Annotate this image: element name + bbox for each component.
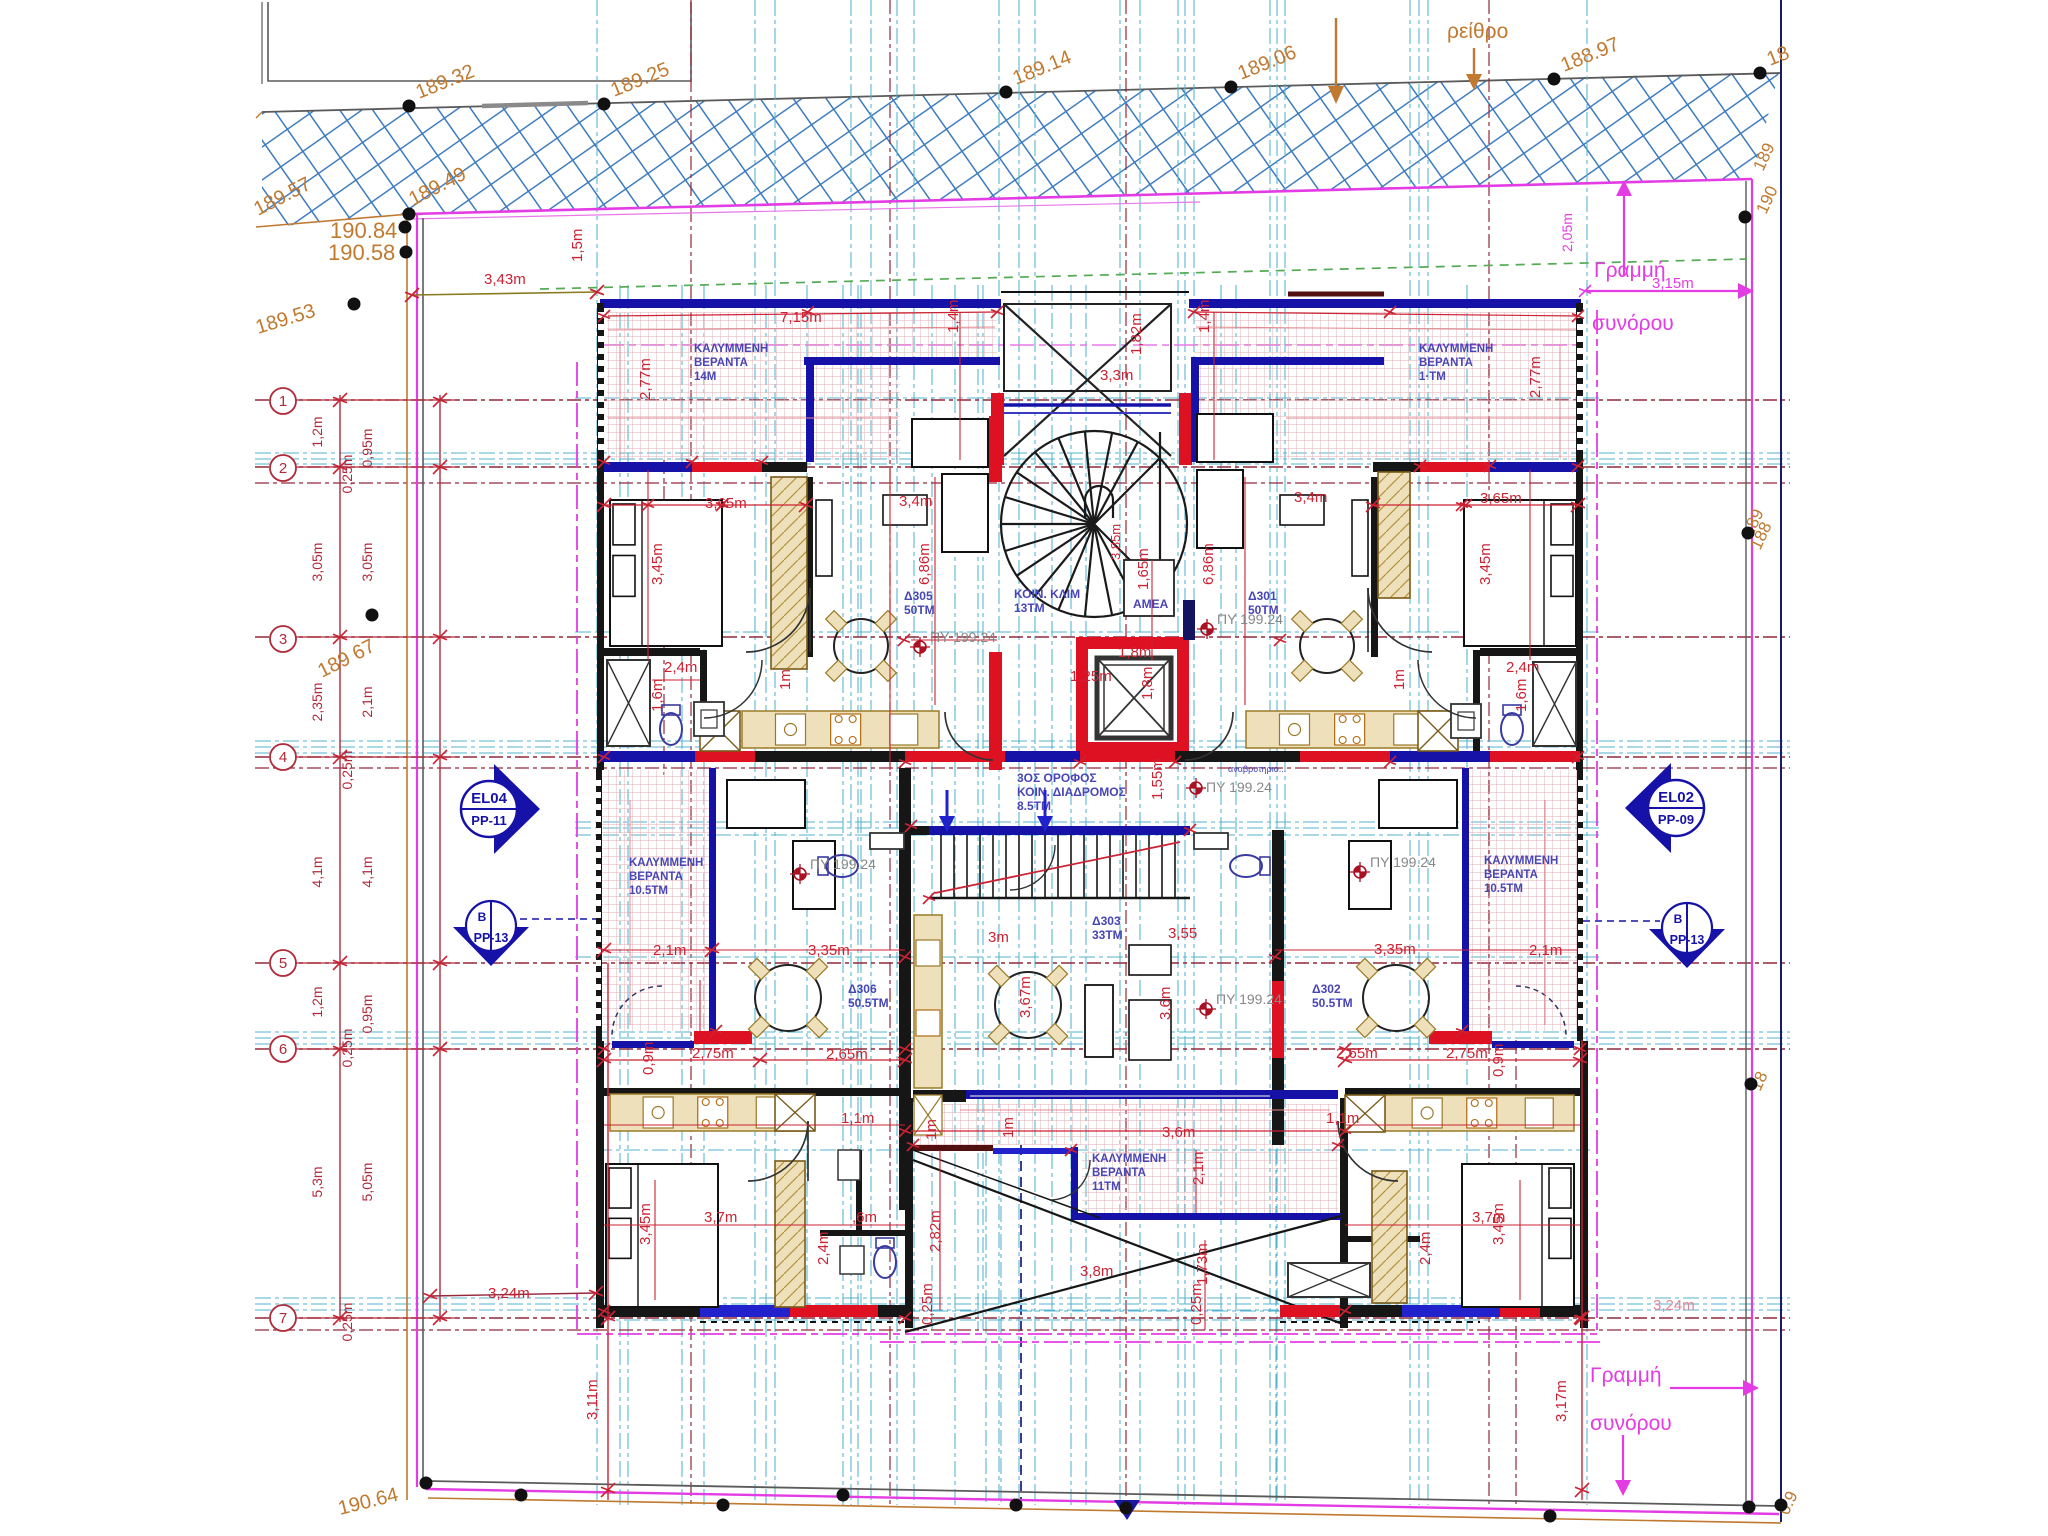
svg-text:2,1m: 2,1m bbox=[1190, 1152, 1207, 1185]
svg-text:5: 5 bbox=[279, 955, 287, 972]
svg-text:ΒΕΡΑΝΤΑ: ΒΕΡΑΝΤΑ bbox=[1092, 1167, 1146, 1179]
svg-text:ΚΑΛΥΜΜΕΝΗ: ΚΑΛΥΜΜΕΝΗ bbox=[1484, 855, 1558, 867]
svg-text:0,95m: 0,95m bbox=[359, 429, 375, 468]
svg-text:3,45m: 3,45m bbox=[1477, 543, 1494, 585]
svg-text:50.5ΤΜ: 50.5ΤΜ bbox=[848, 996, 889, 1010]
svg-text:2,4m: 2,4m bbox=[815, 1232, 832, 1265]
svg-text:0,25m: 0,25m bbox=[1188, 1283, 1205, 1325]
svg-text:Δ303: Δ303 bbox=[1092, 914, 1121, 928]
svg-text:0,25m: 0,25m bbox=[919, 1283, 936, 1325]
svg-text:6,86m: 6,86m bbox=[916, 543, 933, 585]
svg-text:συνόρου: συνόρου bbox=[1592, 312, 1674, 335]
svg-text:ΠΥ 199.24: ΠΥ 199.24 bbox=[1206, 779, 1272, 795]
svg-text:3,17m: 3,17m bbox=[1553, 1380, 1570, 1422]
svg-text:3,8m: 3,8m bbox=[1080, 1263, 1113, 1280]
svg-text:2,1m: 2,1m bbox=[653, 942, 686, 959]
svg-text:1,73m: 1,73m bbox=[1194, 1243, 1211, 1285]
svg-text:14Μ: 14Μ bbox=[694, 371, 716, 383]
svg-text:3,43m: 3,43m bbox=[484, 271, 526, 288]
svg-text:2,77m: 2,77m bbox=[637, 358, 654, 400]
svg-text:ΒΕΡΑΝΤΑ: ΒΕΡΑΝΤΑ bbox=[1419, 357, 1473, 369]
svg-text:1,8m: 1,8m bbox=[1118, 644, 1151, 661]
svg-text:Γραμμή: Γραμμή bbox=[1590, 1364, 1662, 1387]
svg-text:2,05m: 2,05m bbox=[1559, 213, 1575, 252]
svg-text:ΠΥ 199.24: ΠΥ 199.24 bbox=[1216, 991, 1282, 1007]
svg-text:PP-13: PP-13 bbox=[1670, 933, 1705, 947]
svg-text:3,35m: 3,35m bbox=[808, 942, 850, 959]
svg-text:11ΤΜ: 11ΤΜ bbox=[1092, 1181, 1121, 1193]
svg-text:ΚΑΛΥΜΜΕΝΗ: ΚΑΛΥΜΜΕΝΗ bbox=[629, 857, 703, 869]
svg-text:ΠΥ 199.24: ΠΥ 199.24 bbox=[930, 629, 996, 645]
svg-text:B: B bbox=[478, 910, 487, 924]
svg-text:2,1m: 2,1m bbox=[1529, 942, 1562, 959]
svg-text:6,86m: 6,86m bbox=[1200, 543, 1217, 585]
svg-text:ΠΥ 199.24: ΠΥ 199.24 bbox=[810, 856, 876, 872]
svg-text:1,4m: 1,4m bbox=[1196, 300, 1213, 333]
svg-text:ΚΟΙΝ. ΚΛΙΜ: ΚΟΙΝ. ΚΛΙΜ bbox=[1014, 587, 1080, 601]
svg-text:ΚΑΛΥΜΜΕΝΗ: ΚΑΛΥΜΜΕΝΗ bbox=[694, 343, 768, 355]
svg-text:2,35m: 2,35m bbox=[309, 683, 325, 722]
svg-text:33ΤΜ: 33ΤΜ bbox=[1092, 928, 1123, 942]
svg-text:ΚΑΛΥΜΜΕΝΗ: ΚΑΛΥΜΜΕΝΗ bbox=[1419, 343, 1493, 355]
svg-text:2,4m: 2,4m bbox=[664, 659, 697, 676]
svg-text:6: 6 bbox=[279, 1041, 287, 1058]
svg-text:1,65m: 1,65m bbox=[1135, 548, 1152, 590]
svg-text:2,4m: 2,4m bbox=[1506, 659, 1539, 676]
svg-text:3,3m: 3,3m bbox=[1100, 367, 1133, 384]
svg-text:1m: 1m bbox=[1000, 1117, 1017, 1138]
svg-text:Δ302: Δ302 bbox=[1312, 982, 1341, 996]
svg-text:1m: 1m bbox=[923, 1119, 940, 1140]
svg-text:Δ301: Δ301 bbox=[1248, 589, 1277, 603]
svg-text:3,24m: 3,24m bbox=[1653, 1297, 1695, 1314]
svg-text:Δ305: Δ305 bbox=[904, 589, 933, 603]
svg-text:PP-13: PP-13 bbox=[474, 931, 509, 945]
svg-text:3ΟΣ ΟΡΟΦΟΣ: 3ΟΣ ΟΡΟΦΟΣ bbox=[1017, 771, 1097, 785]
svg-text:1m: 1m bbox=[1391, 669, 1408, 690]
svg-text:3,67m: 3,67m bbox=[1017, 976, 1034, 1018]
svg-text:2,82m: 2,82m bbox=[927, 1210, 944, 1252]
svg-text:2: 2 bbox=[279, 460, 287, 477]
svg-text:7,15m: 7,15m bbox=[780, 309, 822, 326]
svg-text:2,65m: 2,65m bbox=[1336, 1045, 1378, 1062]
svg-text:3,65m: 3,65m bbox=[705, 495, 747, 512]
svg-text:3,7m: 3,7m bbox=[1472, 1209, 1505, 1226]
svg-text:Δ306: Δ306 bbox=[848, 982, 877, 996]
svg-text:7: 7 bbox=[279, 1310, 287, 1327]
svg-text:1,2m: 1,2m bbox=[309, 416, 325, 447]
svg-text:συνόρου: συνόρου bbox=[1590, 1412, 1672, 1435]
svg-text:3,24m: 3,24m bbox=[488, 1285, 530, 1302]
svg-text:3,45m: 3,45m bbox=[637, 1203, 654, 1245]
svg-text:0,9m: 0,9m bbox=[640, 1042, 657, 1075]
svg-text:4,1m: 4,1m bbox=[309, 856, 325, 887]
svg-text:0,25m: 0,25m bbox=[339, 455, 355, 494]
svg-text:,6m: ,6m bbox=[852, 1209, 877, 1226]
svg-text:3,45m: 3,45m bbox=[649, 543, 666, 585]
svg-text:190.58: 190.58 bbox=[328, 240, 395, 265]
svg-text:3,4m: 3,4m bbox=[1294, 489, 1327, 506]
svg-text:ΠΥ 199.24: ΠΥ 199.24 bbox=[1217, 611, 1283, 627]
svg-text:3,35m: 3,35m bbox=[1374, 941, 1416, 958]
svg-text:50ΤΜ: 50ΤΜ bbox=[904, 603, 935, 617]
svg-text:3,4m: 3,4m bbox=[899, 493, 932, 510]
svg-text:5,3m: 5,3m bbox=[309, 1166, 325, 1197]
svg-text:3,05m: 3,05m bbox=[359, 543, 375, 582]
svg-text:50.5ΤΜ: 50.5ΤΜ bbox=[1312, 996, 1353, 1010]
svg-text:αναβρυτηριο...: αναβρυτηριο... bbox=[1228, 764, 1286, 774]
svg-text:0,25m: 0,25m bbox=[339, 1029, 355, 1068]
svg-text:4,1m: 4,1m bbox=[359, 856, 375, 887]
svg-text:2,1m: 2,1m bbox=[359, 686, 375, 717]
svg-text:1,1m: 1,1m bbox=[841, 1110, 874, 1127]
svg-text:1,55m: 1,55m bbox=[1149, 758, 1166, 800]
svg-text:EL02: EL02 bbox=[1658, 789, 1694, 806]
svg-text:0,95m: 0,95m bbox=[359, 995, 375, 1034]
svg-text:1,2m: 1,2m bbox=[309, 986, 325, 1017]
svg-text:1,5m: 1,5m bbox=[569, 229, 586, 262]
svg-text:1,4m: 1,4m bbox=[945, 300, 962, 333]
svg-text:1,1m: 1,1m bbox=[1326, 1110, 1359, 1127]
svg-text:10.5ΤΜ: 10.5ΤΜ bbox=[1484, 883, 1523, 895]
svg-text:10.5ΤΜ: 10.5ΤΜ bbox=[629, 885, 668, 897]
svg-text:B: B bbox=[1674, 912, 1683, 926]
svg-text:2,4m: 2,4m bbox=[1417, 1232, 1434, 1265]
svg-text:3,65m: 3,65m bbox=[1480, 490, 1522, 507]
svg-text:13ΤΜ: 13ΤΜ bbox=[1014, 601, 1045, 615]
svg-text:5,05m: 5,05m bbox=[359, 1163, 375, 1202]
svg-text:0,25m: 0,25m bbox=[339, 1303, 355, 1342]
svg-text:ΠΥ 199.24: ΠΥ 199.24 bbox=[1370, 854, 1436, 870]
svg-text:ΚΟΙΝ. ΔΙΑΔΡΟΜΟΣ: ΚΟΙΝ. ΔΙΑΔΡΟΜΟΣ bbox=[1017, 785, 1126, 799]
svg-text:1,6m: 1,6m bbox=[1513, 679, 1530, 712]
svg-text:1,82m: 1,82m bbox=[1128, 313, 1145, 355]
svg-text:ΑΜΕΑ: ΑΜΕΑ bbox=[1133, 597, 1169, 611]
svg-text:1,25m: 1,25m bbox=[1070, 668, 1112, 685]
svg-text:ρείθρο: ρείθρο bbox=[1447, 20, 1508, 43]
svg-text:4: 4 bbox=[279, 749, 287, 766]
svg-text:PP-11: PP-11 bbox=[471, 813, 506, 828]
svg-text:1: 1 bbox=[279, 393, 287, 410]
svg-text:1,8m: 1,8m bbox=[1139, 667, 1156, 700]
svg-text:2,77m: 2,77m bbox=[1527, 356, 1544, 398]
svg-text:2,75m: 2,75m bbox=[692, 1045, 734, 1062]
svg-text:ΒΕΡΑΝΤΑ: ΒΕΡΑΝΤΑ bbox=[629, 871, 683, 883]
svg-text:3,11m: 3,11m bbox=[584, 1379, 601, 1420]
svg-text:3,6m: 3,6m bbox=[1162, 1124, 1195, 1141]
svg-text:3: 3 bbox=[279, 631, 287, 648]
svg-text:2,65m: 2,65m bbox=[826, 1046, 868, 1063]
svg-text:0,9m: 0,9m bbox=[1490, 1044, 1507, 1077]
svg-text:1,6m: 1,6m bbox=[649, 679, 666, 712]
svg-text:1·ΤΜ: 1·ΤΜ bbox=[1419, 371, 1446, 383]
svg-text:3,15m: 3,15m bbox=[1652, 275, 1694, 292]
svg-text:3,55: 3,55 bbox=[1168, 925, 1197, 942]
svg-text:3,05m: 3,05m bbox=[309, 543, 325, 582]
svg-text:3,6m: 3,6m bbox=[1157, 987, 1174, 1020]
svg-text:3m: 3m bbox=[988, 929, 1009, 946]
svg-text:EL04: EL04 bbox=[471, 790, 508, 807]
svg-text:0,25m: 0,25m bbox=[339, 751, 355, 790]
svg-text:1m: 1m bbox=[777, 669, 794, 690]
svg-text:ΒΕΡΑΝΤΑ: ΒΕΡΑΝΤΑ bbox=[1484, 869, 1538, 881]
svg-text:3,7m: 3,7m bbox=[704, 1209, 737, 1226]
svg-text:3,85m: 3,85m bbox=[1108, 524, 1123, 560]
svg-text:PP-09: PP-09 bbox=[1658, 812, 1694, 827]
svg-text:ΚΑΛΥΜΜΕΝΗ: ΚΑΛΥΜΜΕΝΗ bbox=[1092, 1153, 1166, 1165]
svg-text:ΒΕΡΑΝΤΑ: ΒΕΡΑΝΤΑ bbox=[694, 357, 748, 369]
svg-text:2,75m: 2,75m bbox=[1446, 1045, 1488, 1062]
